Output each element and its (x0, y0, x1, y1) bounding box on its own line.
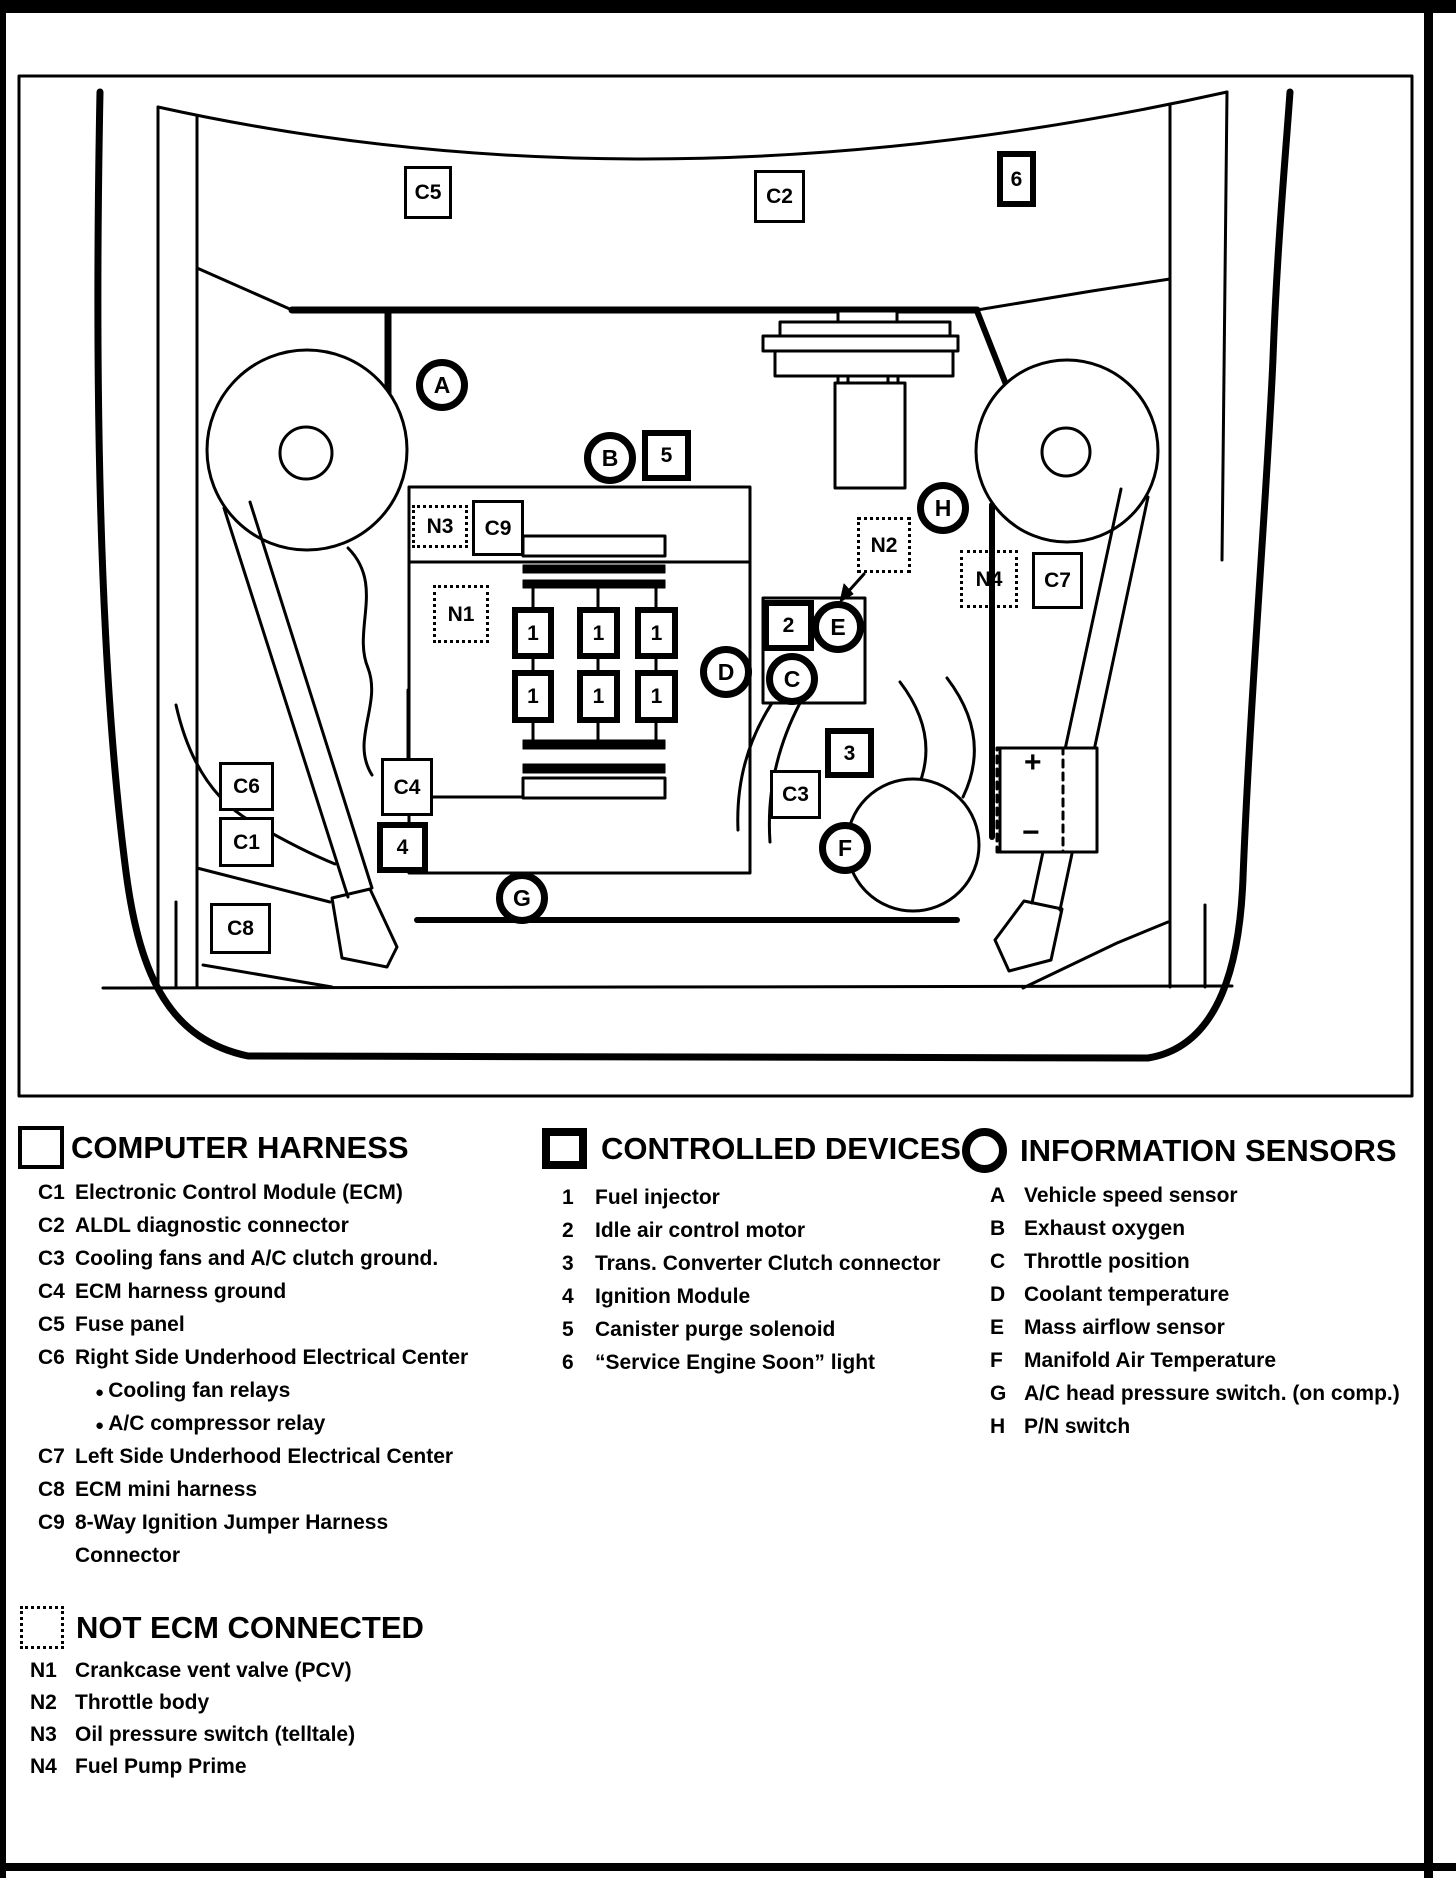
battery-minus-label: − (1022, 818, 1040, 848)
not-ecm-item-N1: N1Crankcase vent valve (PCV) (20, 1659, 540, 1691)
item-code: C9 (38, 1511, 75, 1535)
legend-computer-harness-header: COMPUTER HARNESS (18, 1126, 409, 1169)
marker-device-1: 1 (577, 670, 620, 723)
item-code: N4 (30, 1755, 75, 1779)
sensor-item-E: EMass airflow sensor (988, 1316, 1448, 1349)
item-code: H (990, 1415, 1024, 1439)
marker-device-1: 1 (512, 607, 554, 659)
marker-not-ecm-N2: N2 (857, 517, 911, 573)
marker-device-1: 1 (512, 670, 554, 723)
item-code: N1 (30, 1659, 75, 1683)
item-code: C8 (38, 1478, 75, 1502)
harness-item-C4: C4ECM harness ground (18, 1280, 538, 1313)
legend-title: NOT ECM CONNECTED (76, 1610, 424, 1646)
item-text: Manifold Air Temperature (1024, 1349, 1276, 1373)
item-text: Fuel Pump Prime (75, 1755, 247, 1779)
item-code: B (990, 1217, 1024, 1241)
item-text: Throttle position (1024, 1250, 1190, 1274)
item-text: Trans. Converter Clutch connector (595, 1252, 940, 1276)
sensor-circle-icon (962, 1128, 1007, 1173)
harness-item-C7: C7Left Side Underhood Electrical Center (18, 1445, 538, 1478)
marker-harness-C3: C3 (770, 770, 821, 819)
item-text: Electronic Control Module (ECM) (75, 1181, 403, 1205)
device-item-6: 6“Service Engine Soon” light (545, 1351, 975, 1384)
marker-not-ecm-N4: N4 (960, 550, 1018, 608)
item-code: G (990, 1382, 1024, 1406)
item-code: 6 (562, 1351, 595, 1375)
item-code: E (990, 1316, 1024, 1340)
computer-harness-list: C1Electronic Control Module (ECM)C2ALDL … (18, 1181, 538, 1577)
legend-title: COMPUTER HARNESS (71, 1130, 409, 1166)
marker-device-6: 6 (997, 151, 1036, 207)
item-text: A/C head pressure switch. (on comp.) (1024, 1382, 1400, 1406)
marker-sensor-E: E (812, 601, 864, 653)
item-text: Idle air control motor (595, 1219, 805, 1243)
device-item-2: 2Idle air control motor (545, 1219, 975, 1252)
marker-device-5: 5 (642, 430, 691, 481)
harness-item-cont: Connector (18, 1544, 538, 1577)
device-item-4: 4Ignition Module (545, 1285, 975, 1318)
harness-item-C5: C5Fuse panel (18, 1313, 538, 1346)
item-code: D (990, 1283, 1024, 1307)
harness-item-bullet: Cooling fan relays (18, 1379, 538, 1412)
item-code: N2 (30, 1691, 75, 1715)
harness-item-C1: C1Electronic Control Module (ECM) (18, 1181, 538, 1214)
marker-harness-C6: C6 (219, 762, 274, 811)
device-item-3: 3Trans. Converter Clutch connector (545, 1252, 975, 1285)
battery-plus-label: + (1024, 748, 1042, 778)
device-item-1: 1Fuel injector (545, 1186, 975, 1219)
item-code: 3 (562, 1252, 595, 1276)
marker-device-1: 1 (577, 607, 620, 659)
harness-item-C6: C6Right Side Underhood Electrical Center (18, 1346, 538, 1379)
legend-information-sensors-header: INFORMATION SENSORS (962, 1128, 1397, 1173)
legend-not-ecm-header: NOT ECM CONNECTED (20, 1606, 424, 1649)
not-ecm-item-N4: N4Fuel Pump Prime (20, 1755, 540, 1787)
marker-sensor-H: H (917, 482, 969, 534)
item-code: 4 (562, 1285, 595, 1309)
harness-item-C2: C2ALDL diagnostic connector (18, 1214, 538, 1247)
marker-harness-C7: C7 (1032, 552, 1083, 609)
item-code: C3 (38, 1247, 75, 1271)
item-code: 2 (562, 1219, 595, 1243)
harness-item-bullet: A/C compressor relay (18, 1412, 538, 1445)
harness-item-C9: C98-Way Ignition Jumper Harness (18, 1511, 538, 1544)
marker-harness-C9: C9 (472, 500, 524, 556)
harness-item-C3: C3Cooling fans and A/C clutch ground. (18, 1247, 538, 1280)
item-text: Mass airflow sensor (1024, 1316, 1225, 1340)
item-code: C4 (38, 1280, 75, 1304)
windshield-curve (158, 92, 1227, 159)
sensor-item-F: FManifold Air Temperature (988, 1349, 1448, 1382)
marker-sensor-G: G (496, 872, 548, 924)
not-ecm-item-N2: N2Throttle body (20, 1691, 540, 1723)
item-code: N3 (30, 1723, 75, 1747)
controlled-devices-list: 1Fuel injector2Idle air control motor3Tr… (545, 1186, 975, 1384)
item-code: A (990, 1184, 1024, 1208)
item-code: 5 (562, 1318, 595, 1342)
item-text: Right Side Underhood Electrical Center (75, 1346, 468, 1370)
marker-sensor-F: F (819, 822, 871, 874)
marker-device-2: 2 (763, 600, 814, 651)
sensor-item-D: DCoolant temperature (988, 1283, 1448, 1316)
item-text: P/N switch (1024, 1415, 1130, 1439)
marker-sensor-D: D (700, 646, 752, 698)
item-code: C1 (38, 1181, 75, 1205)
marker-sensor-A: A (416, 359, 468, 411)
item-text: Connector (75, 1544, 180, 1568)
item-code: F (990, 1349, 1024, 1373)
item-text: Ignition Module (595, 1285, 750, 1309)
not-ecm-item-N3: N3Oil pressure switch (telltale) (20, 1723, 540, 1755)
marker-harness-C2: C2 (754, 170, 805, 223)
not-ecm-box-icon (20, 1606, 64, 1649)
legend-title: CONTROLLED DEVICES (601, 1131, 961, 1167)
sensor-item-G: GA/C head pressure switch. (on comp.) (988, 1382, 1448, 1415)
marker-harness-C1: C1 (219, 817, 274, 867)
legend-title: INFORMATION SENSORS (1020, 1133, 1397, 1169)
legend-controlled-devices-header: CONTROLLED DEVICES (542, 1128, 961, 1169)
item-text: A/C compressor relay (95, 1412, 325, 1436)
marker-device-1: 1 (635, 670, 678, 723)
device-box-icon (542, 1128, 587, 1169)
item-text: ECM mini harness (75, 1478, 257, 1502)
device-item-5: 5Canister purge solenoid (545, 1318, 975, 1351)
battery (997, 748, 1097, 852)
item-text: Exhaust oxygen (1024, 1217, 1185, 1241)
item-code: C7 (38, 1445, 75, 1469)
marker-device-4: 4 (377, 822, 428, 873)
item-text: Cooling fan relays (95, 1379, 290, 1403)
item-text: Cooling fans and A/C clutch ground. (75, 1247, 438, 1271)
page: C5C2C9C7C4C6C3C1C865211111134N3N2N4N1ABH… (0, 0, 1456, 1878)
item-text: Fuse panel (75, 1313, 185, 1337)
item-code: 1 (562, 1186, 595, 1210)
left-wheel (207, 350, 407, 550)
marker-harness-C4: C4 (381, 758, 433, 816)
sensor-item-B: BExhaust oxygen (988, 1217, 1448, 1250)
item-text: 8-Way Ignition Jumper Harness (75, 1511, 388, 1535)
item-text: Oil pressure switch (telltale) (75, 1723, 355, 1747)
marker-device-3: 3 (825, 728, 874, 778)
sensor-item-H: HP/N switch (988, 1415, 1448, 1448)
item-text: ALDL diagnostic connector (75, 1214, 349, 1238)
marker-sensor-C: C (766, 653, 818, 705)
item-text: Throttle body (75, 1691, 209, 1715)
item-code: C5 (38, 1313, 75, 1337)
harness-box-icon (18, 1126, 64, 1169)
marker-not-ecm-N3: N3 (412, 505, 468, 548)
item-code: C6 (38, 1346, 75, 1370)
item-text: Coolant temperature (1024, 1283, 1229, 1307)
marker-not-ecm-N1: N1 (433, 585, 489, 643)
air-cleaner (763, 311, 958, 488)
marker-sensor-B: B (584, 432, 636, 484)
marker-harness-C5: C5 (404, 166, 452, 219)
item-code: C2 (38, 1214, 75, 1238)
item-text: Vehicle speed sensor (1024, 1184, 1238, 1208)
item-text: Left Side Underhood Electrical Center (75, 1445, 453, 1469)
marker-device-1: 1 (635, 607, 678, 659)
information-sensors-list: AVehicle speed sensorBExhaust oxygenCThr… (988, 1184, 1448, 1448)
item-code: C (990, 1250, 1024, 1274)
not-ecm-list: N1Crankcase vent valve (PCV)N2Throttle b… (20, 1659, 540, 1787)
item-text: “Service Engine Soon” light (595, 1351, 875, 1375)
sensor-item-A: AVehicle speed sensor (988, 1184, 1448, 1217)
item-text: Fuel injector (595, 1186, 720, 1210)
right-wheel (976, 360, 1158, 542)
item-text: ECM harness ground (75, 1280, 286, 1304)
sensor-item-C: CThrottle position (988, 1250, 1448, 1283)
item-text: Canister purge solenoid (595, 1318, 835, 1342)
harness-item-C8: C8ECM mini harness (18, 1478, 538, 1511)
marker-harness-C8: C8 (210, 903, 271, 954)
item-text: Crankcase vent valve (PCV) (75, 1659, 352, 1683)
